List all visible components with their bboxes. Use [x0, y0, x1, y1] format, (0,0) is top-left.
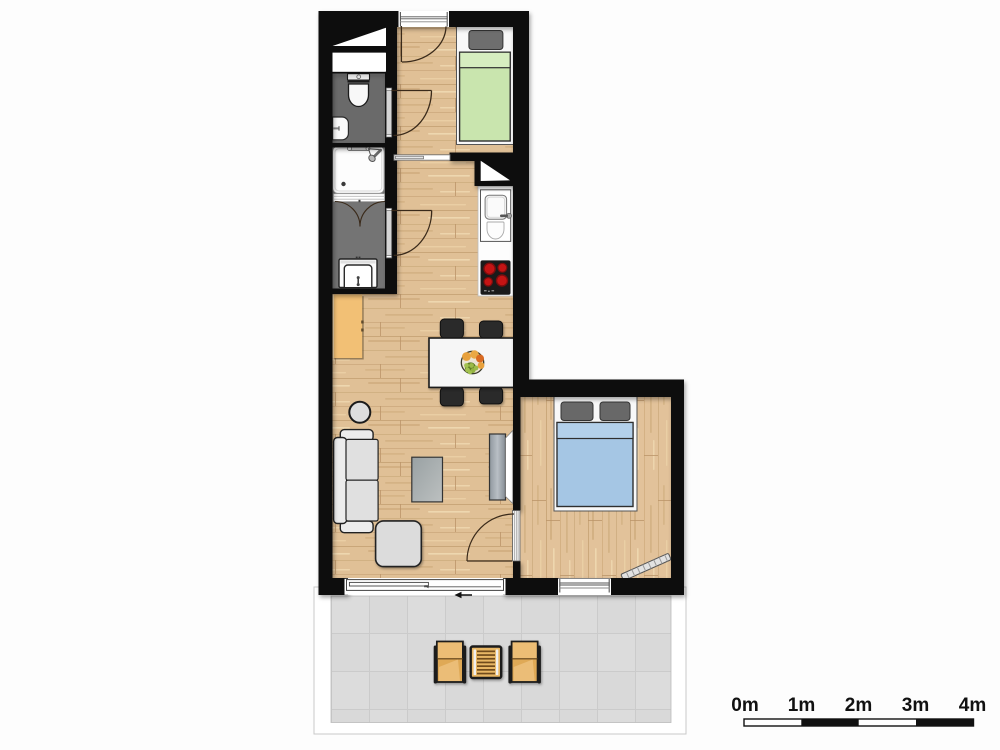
svg-text:4m: 4m [959, 695, 986, 716]
svg-text:2m: 2m [845, 695, 872, 716]
svg-text:0m: 0m [731, 695, 758, 716]
svg-text:1m: 1m [788, 695, 815, 716]
svg-text:3m: 3m [902, 695, 929, 716]
